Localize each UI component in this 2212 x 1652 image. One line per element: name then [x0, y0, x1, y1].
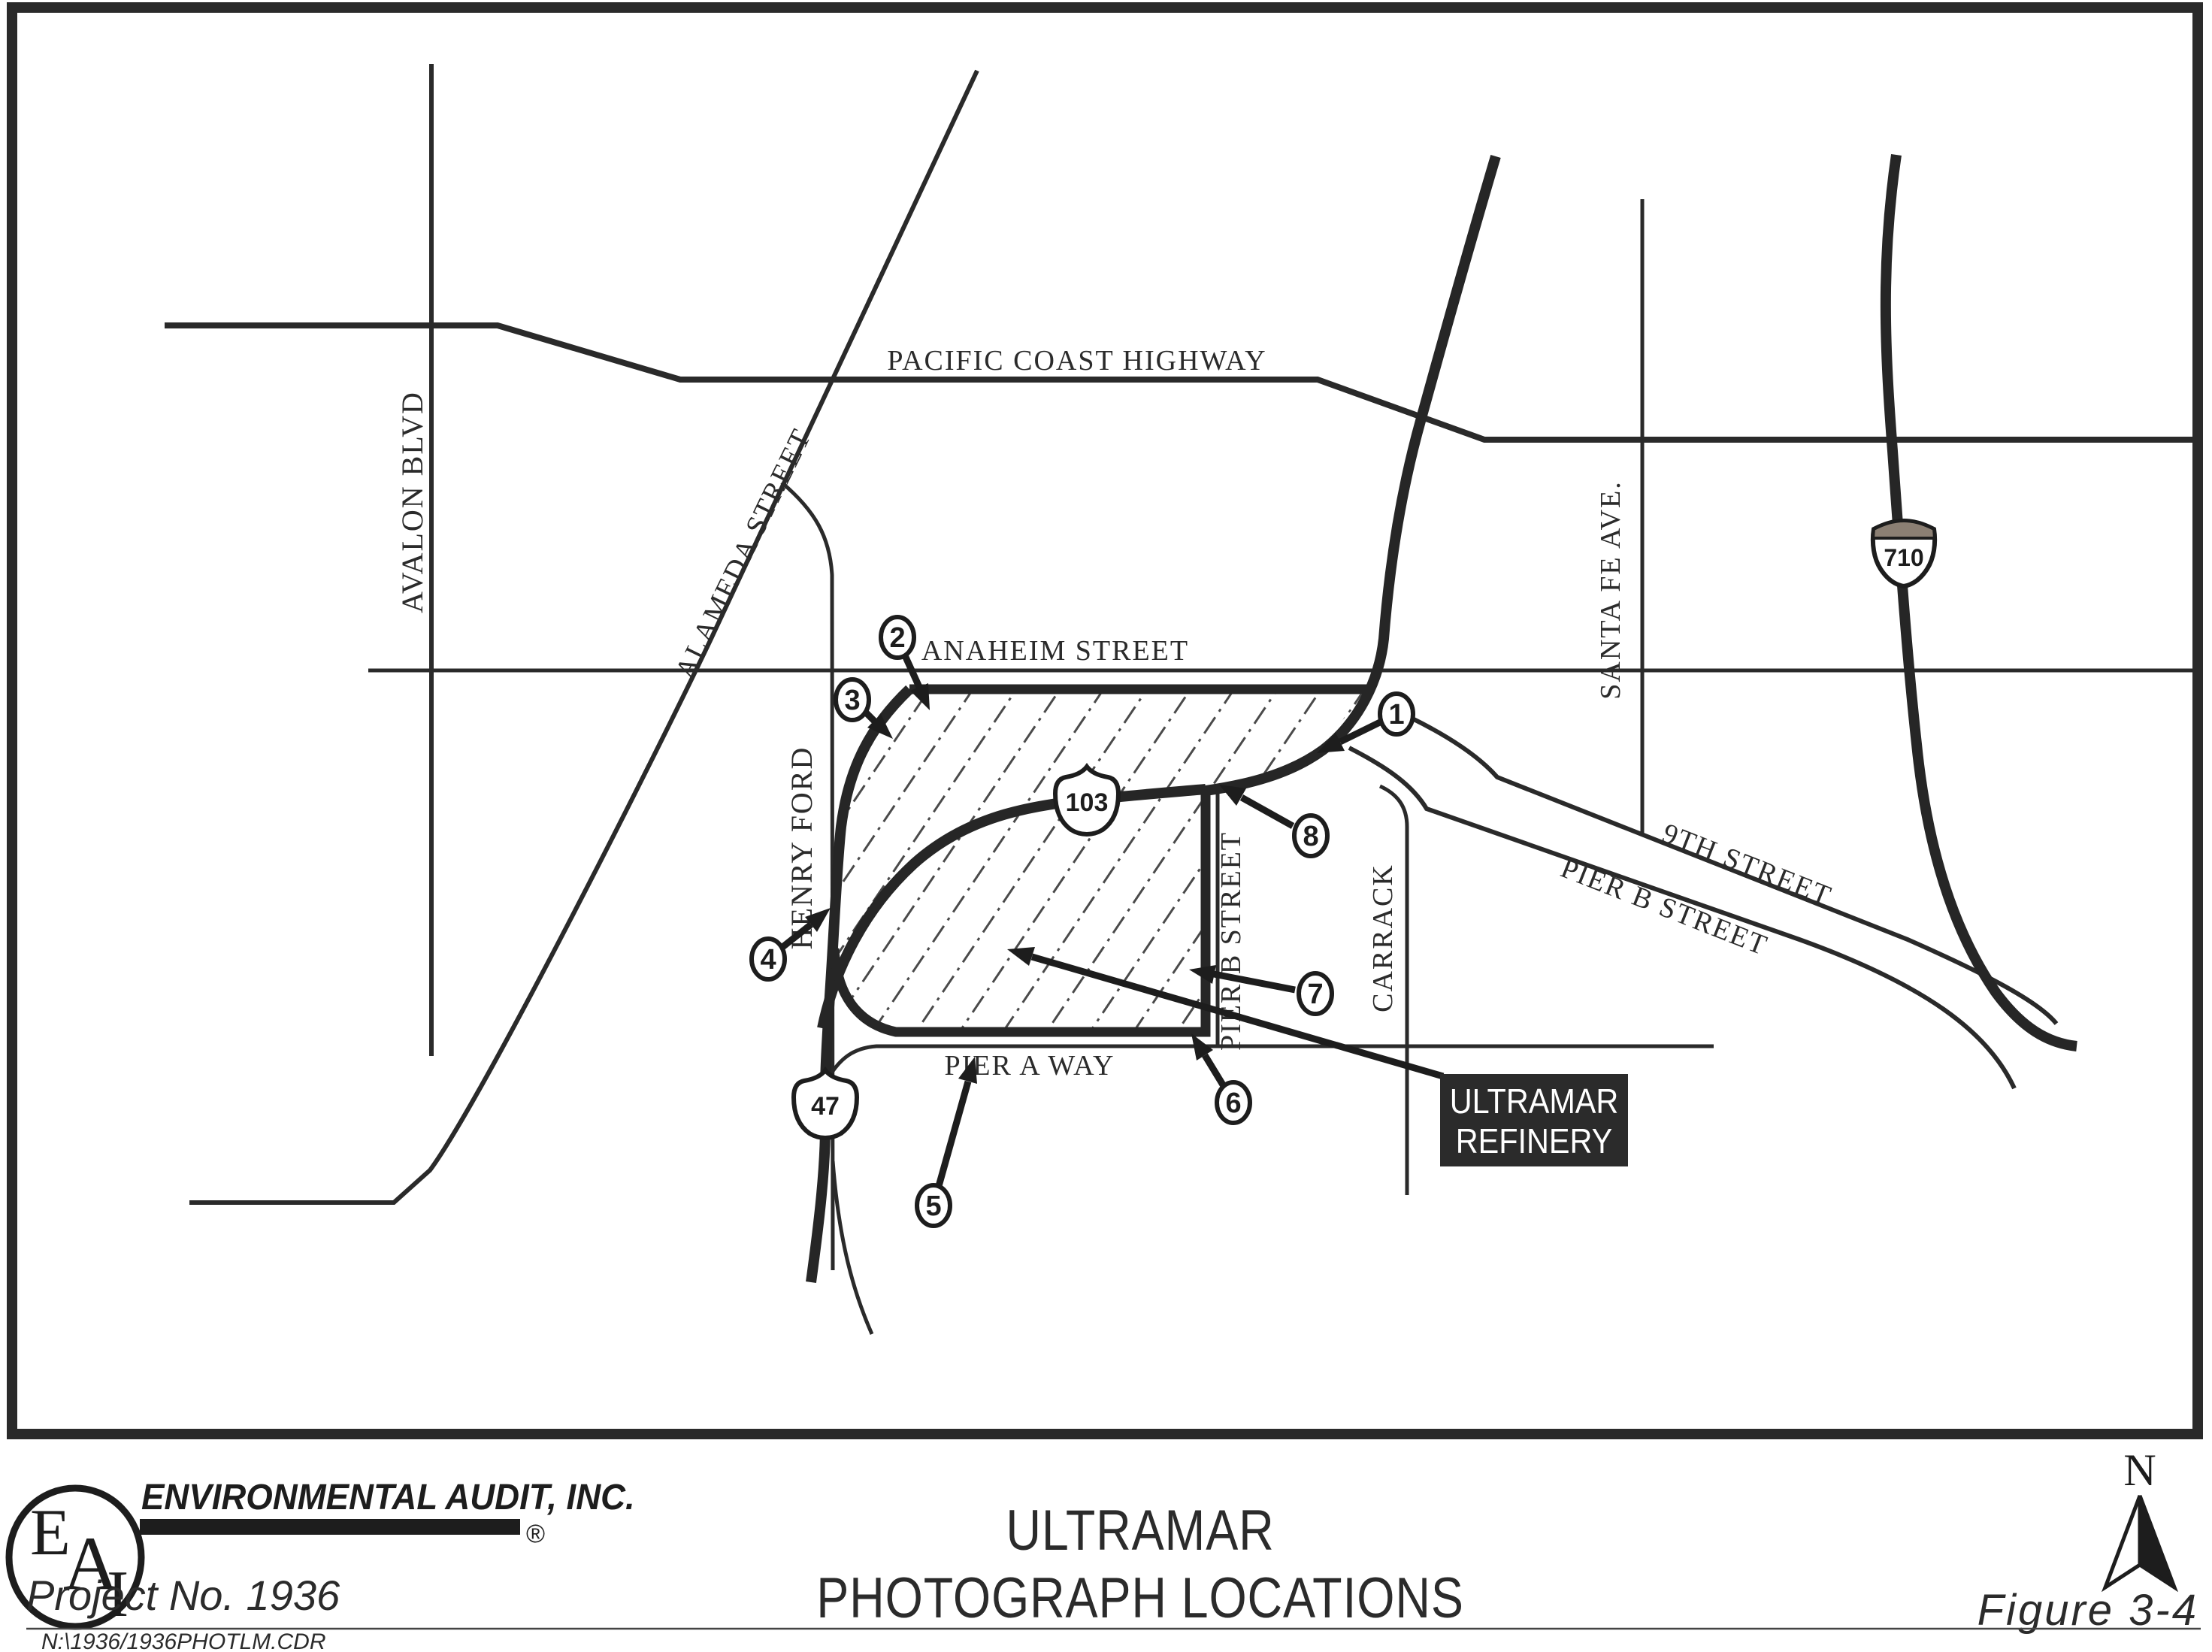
photo-7-number: 7: [1307, 979, 1323, 1010]
route-103-shield: 103: [1055, 767, 1118, 834]
photo-8-number: 8: [1303, 821, 1318, 852]
route-47-shield: 47: [794, 1070, 857, 1138]
photo-location-5: 5: [917, 1185, 950, 1226]
photo-3-number: 3: [844, 685, 860, 716]
company-name: ENVIRONMENTAL AUDIT, INC.: [141, 1477, 635, 1517]
photo-location-1: 1: [1380, 694, 1413, 734]
refinery-label-box: ULTRAMAR REFINERY: [1440, 1074, 1628, 1166]
photo-location-4: 4: [752, 939, 785, 979]
photo-location-8: 8: [1294, 815, 1327, 856]
project-number: Project No. 1936: [26, 1572, 340, 1619]
photo-location-2: 2: [881, 617, 914, 658]
photo-4-number: 4: [760, 944, 776, 976]
registered-mark: ®: [526, 1520, 545, 1548]
label-santa-fe-ave: SANTA FE AVE.: [1595, 480, 1626, 699]
label-anaheim-street: ANAHEIM STREET: [921, 635, 1189, 667]
photo-location-7: 7: [1299, 973, 1332, 1014]
photo-1-number: 1: [1388, 699, 1404, 731]
figure-canvas: PACIFIC COAST HIGHWAY ANAHEIM STREET AVA…: [0, 0, 2212, 1652]
label-avalon-blvd: AVALON BLVD: [395, 391, 429, 613]
interstate-710-number: 710: [1884, 544, 1923, 571]
company-underline: [140, 1519, 520, 1535]
photo-2-number: 2: [889, 622, 905, 654]
figure-title-line2: PHOTOGRAPH LOCATIONS: [816, 1566, 1464, 1629]
photo-5-number: 5: [925, 1191, 941, 1222]
refinery-box-line2: REFINERY: [1456, 1122, 1613, 1161]
label-carrack: CARRACK: [1367, 864, 1399, 1012]
route-47-number: 47: [811, 1092, 840, 1121]
north-arrow-icon: [2105, 1496, 2174, 1587]
refinery-box-line1: ULTRAMAR: [1450, 1082, 1619, 1121]
figure-title-line1: ULTRAMAR: [1006, 1498, 1274, 1562]
photo-location-6: 6: [1217, 1082, 1250, 1123]
file-path: N:\1936/1936PHOTLM.CDR: [41, 1629, 326, 1652]
photo-location-3: 3: [836, 679, 869, 720]
photo-6-number: 6: [1225, 1088, 1241, 1119]
figure-number: Figure 3-4: [1977, 1586, 2198, 1635]
label-pacific-coast-highway: PACIFIC COAST HIGHWAY: [887, 345, 1266, 377]
route-103-number: 103: [1066, 788, 1109, 817]
north-letter: N: [2123, 1445, 2156, 1495]
